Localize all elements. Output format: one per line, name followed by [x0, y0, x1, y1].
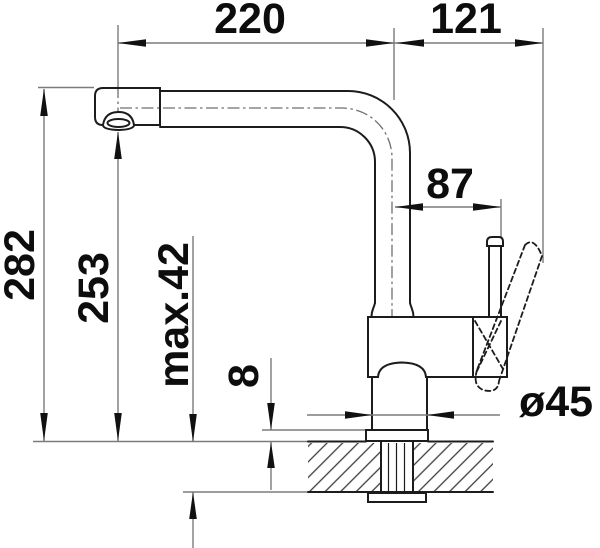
dim-label-253: 253: [70, 252, 118, 324]
drawing-canvas: 220 121 87 282 253 max.42: [0, 0, 600, 548]
faucet-dimension-drawing: 220 121 87 282 253 max.42: [0, 0, 600, 548]
mixer-body: [368, 317, 507, 377]
dim-label-max42: max.42: [150, 242, 198, 388]
dim-253-arrow-top: [114, 132, 122, 160]
dim-045-arrow-right: [427, 411, 454, 419]
dim-045-arrow-left: [345, 411, 372, 419]
dim-8-group: 8: [220, 358, 275, 490]
dim-label-87: 87: [426, 160, 474, 208]
countertop-section: [308, 441, 493, 502]
dim-87-arrow-right: [473, 203, 501, 211]
base-column: [372, 377, 427, 430]
lever-cap: [487, 237, 503, 246]
dim-label-282: 282: [0, 229, 44, 301]
dim-max42-arrow-up: [189, 492, 197, 519]
dim-045-group: ø45: [307, 378, 593, 426]
dim-220-group: 220: [118, 0, 394, 47]
dim-220-arrow-left: [118, 39, 146, 47]
dim-121-arrow-left: [396, 39, 424, 47]
dim-282-arrow-top: [40, 89, 48, 117]
countertop-hatch-left: [308, 443, 381, 491]
dim-max42-arrow-down: [189, 414, 197, 442]
dim-label-8: 8: [220, 364, 268, 388]
dim-label-121: 121: [430, 0, 502, 43]
dim-220-arrow-right: [366, 39, 394, 47]
dim-253-arrow-bottom: [114, 413, 122, 441]
dim-8-arrow-down: [267, 403, 275, 430]
dim-121-arrow-right: [515, 39, 543, 47]
base-flange: [366, 430, 428, 441]
dim-282-group: 282: [0, 89, 48, 442]
dim-121-group: 121: [394, 0, 543, 47]
mounting-nut: [368, 493, 426, 502]
lever-handle-upright: [489, 246, 501, 317]
dim-label-045: ø45: [519, 378, 593, 426]
dim-253-group: 253: [70, 132, 122, 442]
dim-282-arrow-bottom: [40, 413, 48, 441]
dim-max42-group: max.42: [150, 236, 198, 548]
dim-8-arrow-up: [267, 442, 275, 468]
dim-label-220: 220: [214, 0, 286, 43]
shank-thread-lines: [389, 443, 405, 491]
countertop-hatch-right: [413, 443, 493, 491]
